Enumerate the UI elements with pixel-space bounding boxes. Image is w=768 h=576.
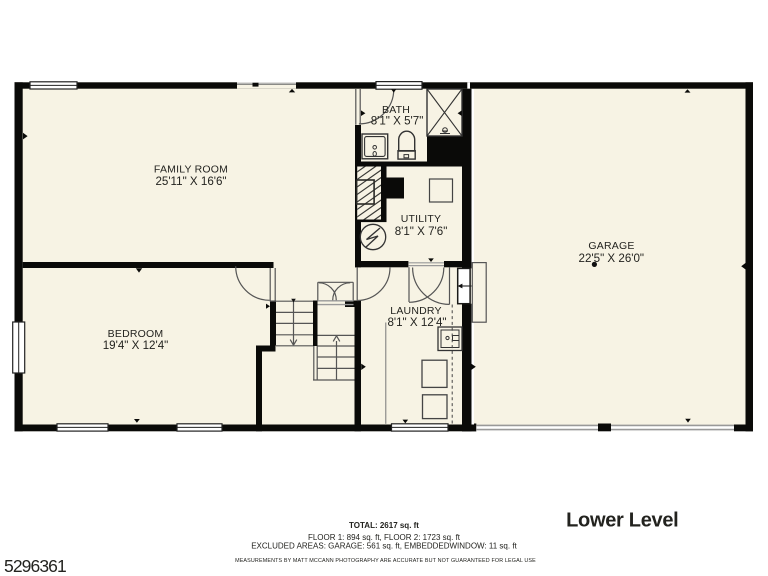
svg-text:25'11" X 16'6": 25'11" X 16'6" (155, 175, 226, 188)
svg-text:BEDROOM: BEDROOM (108, 328, 164, 340)
svg-text:UTILITY: UTILITY (401, 213, 442, 225)
svg-text:GARAGE: GARAGE (588, 240, 634, 252)
svg-text:8'1" X 7'6": 8'1" X 7'6" (395, 225, 448, 238)
svg-text:22'5" X 26'0": 22'5" X 26'0" (579, 252, 645, 265)
svg-text:LAUNDRY: LAUNDRY (390, 305, 441, 317)
svg-text:TOTAL: 2617 sq. ft: TOTAL: 2617 sq. ft (349, 521, 419, 530)
svg-text:Lower Level: Lower Level (566, 509, 678, 531)
svg-text:8'1" X 5'7": 8'1" X 5'7" (371, 115, 424, 128)
svg-text:8'1" X 12'4": 8'1" X 12'4" (387, 316, 446, 329)
svg-text:5296361: 5296361 (4, 556, 66, 576)
svg-text:MEASUREMENTS BY MATT MCCANN PH: MEASUREMENTS BY MATT MCCANN PHOTOGRAPHY … (235, 558, 536, 564)
svg-text:EXCLUDED AREAS: GARAGE: 561 sq: EXCLUDED AREAS: GARAGE: 561 sq. ft, EMBE… (251, 541, 517, 550)
svg-text:FAMILY ROOM: FAMILY ROOM (154, 164, 228, 176)
svg-text:19'4" X 12'4": 19'4" X 12'4" (103, 339, 169, 352)
